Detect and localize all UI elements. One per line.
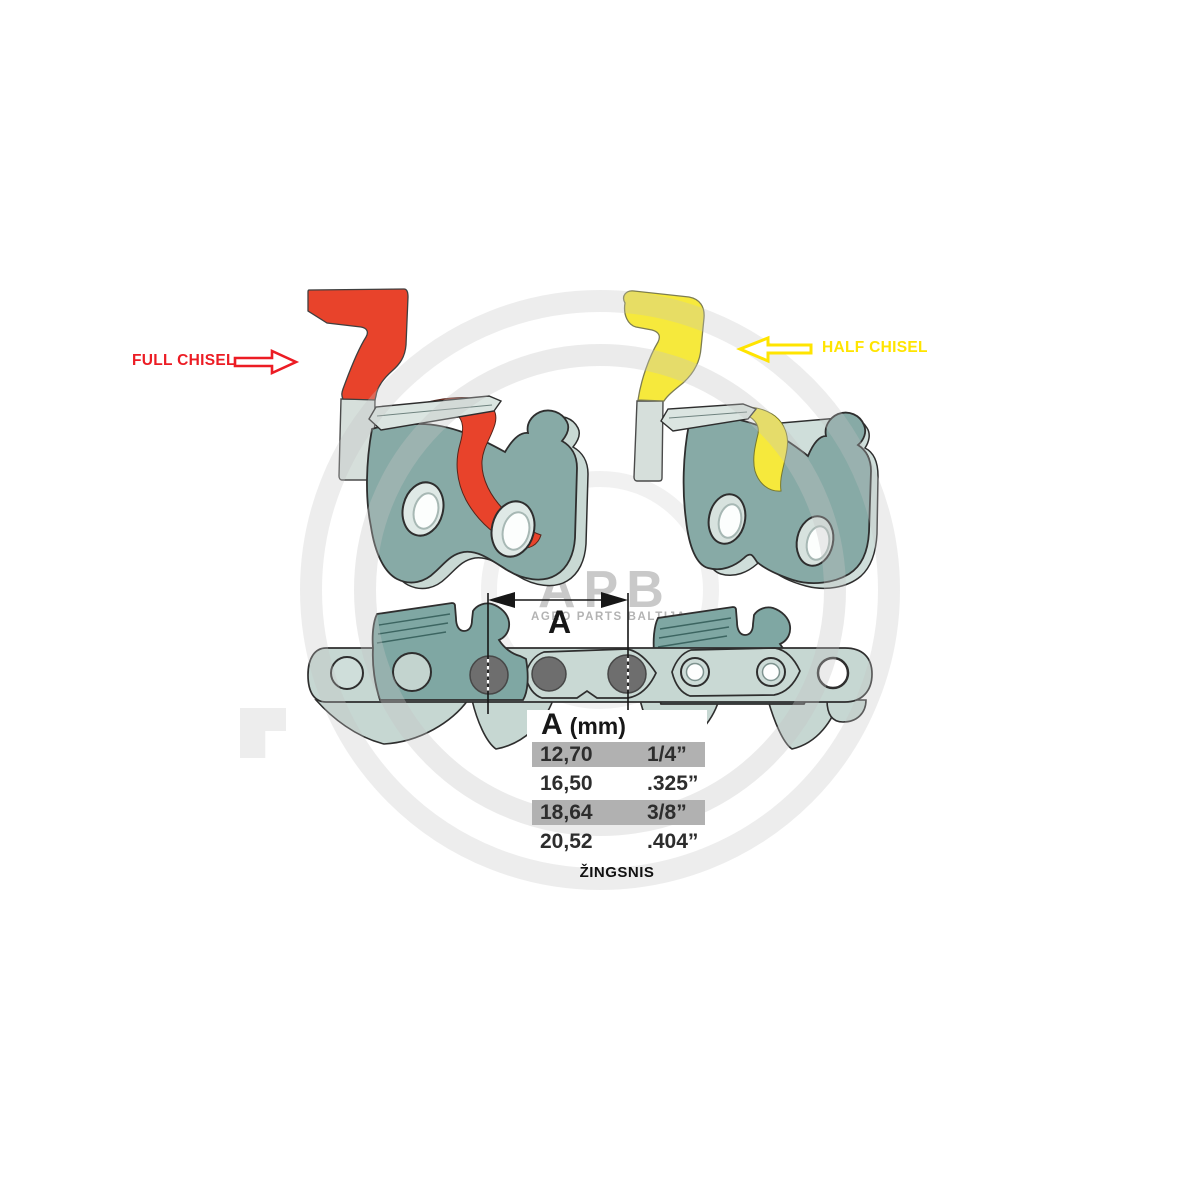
table-row: 18,64 3/8” xyxy=(532,800,705,825)
full-chisel-link xyxy=(367,396,588,589)
half-chisel-yellow-edge xyxy=(624,291,705,401)
pitch-mm-value: 18,64 xyxy=(532,801,647,825)
full-chisel-label: FULL CHISEL xyxy=(132,352,236,370)
pitch-inch-value: 3/8” xyxy=(647,801,705,825)
chain-rivet xyxy=(532,657,566,691)
pitch-inch-value: 1/4” xyxy=(647,743,705,767)
table-row: 20,52 .404” xyxy=(532,829,705,854)
chain-illustration xyxy=(0,0,1188,1188)
pitch-table-header-symbol: A xyxy=(541,710,563,740)
table-row: 12,70 1/4” xyxy=(532,742,705,767)
pitch-mm-value: 20,52 xyxy=(532,830,647,854)
table-row: 16,50 .325” xyxy=(532,771,705,796)
pitch-table: A (mm) 12,70 1/4” 16,50 .325” 18,64 3/8”… xyxy=(527,710,707,858)
pitch-caption: ŽINGSNIS xyxy=(527,864,707,881)
pitch-table-header-unit: (mm) xyxy=(570,713,626,740)
full-chisel-red-edge xyxy=(308,289,408,400)
full-chisel-arrow-icon xyxy=(232,348,300,376)
pitch-inch-value: .325” xyxy=(647,772,705,796)
half-chisel-body-stub xyxy=(634,401,663,481)
dimension-a-label: A xyxy=(548,604,571,641)
dimension-arrowhead-right xyxy=(601,592,628,608)
half-chisel-link xyxy=(661,404,878,588)
half-chisel-label: HALF CHISEL xyxy=(822,339,928,357)
pitch-mm-value: 16,50 xyxy=(532,772,647,796)
chainsaw-chain-diagram: APB AGRO PARTS BALTIJA xyxy=(0,0,1188,1188)
chain-hole xyxy=(818,658,848,688)
end-link-tab xyxy=(827,700,866,722)
drive-link xyxy=(316,700,468,744)
half-chisel-arrow-icon xyxy=(736,334,814,364)
pitch-inch-value: .404” xyxy=(647,830,705,854)
chain-hole xyxy=(331,657,363,689)
pitch-mm-value: 12,70 xyxy=(532,743,647,767)
pitch-table-header: A (mm) xyxy=(527,710,707,742)
chain-hole xyxy=(393,653,431,691)
